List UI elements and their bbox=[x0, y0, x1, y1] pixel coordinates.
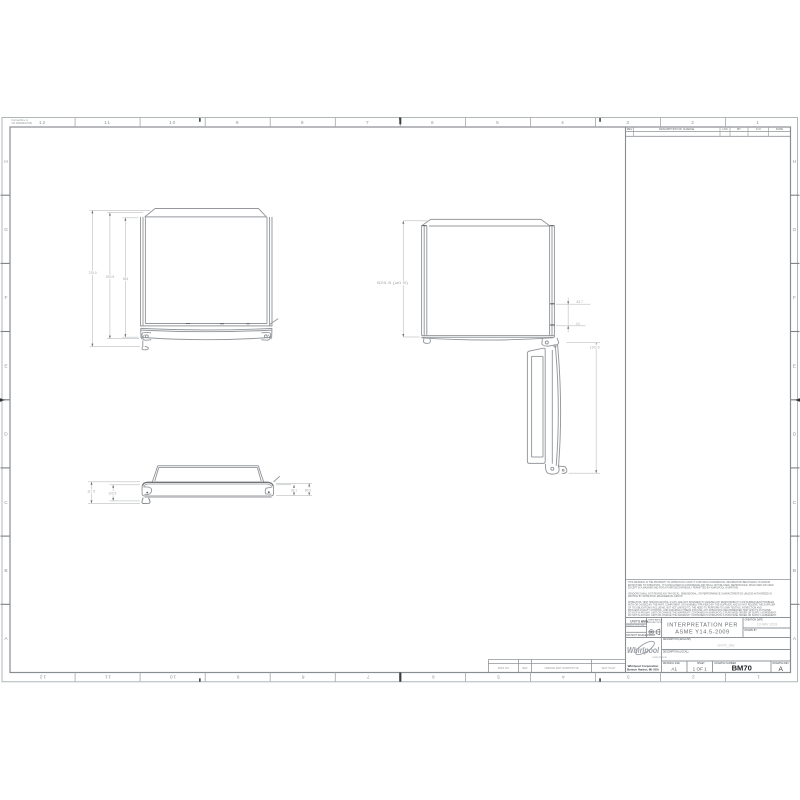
svg-text:D: D bbox=[793, 432, 797, 438]
svg-text:F: F bbox=[5, 295, 8, 301]
svg-text:4: 4 bbox=[561, 674, 565, 680]
svg-text:PART NO: PART NO bbox=[498, 666, 509, 670]
svg-text:11: 11 bbox=[104, 120, 111, 126]
svg-text:Benton Harbor, MI USA: Benton Harbor, MI USA bbox=[627, 667, 660, 671]
svg-text:UNITS: UNITS bbox=[630, 619, 641, 623]
svg-text:5: 5 bbox=[496, 120, 500, 126]
svg-text:10: 10 bbox=[169, 120, 176, 126]
svg-text:3: 3 bbox=[626, 674, 630, 680]
svg-text:DESCRIPTION OF CHANGE: DESCRIPTION OF CHANGE bbox=[659, 127, 694, 131]
svg-text:DATE: DATE bbox=[776, 127, 783, 131]
svg-text:H: H bbox=[793, 159, 797, 165]
svg-text:103.5: 103.5 bbox=[108, 491, 116, 495]
svg-text:ASME Y14.5-2009: ASME Y14.5-2009 bbox=[675, 630, 729, 636]
svg-text:7: 7 bbox=[366, 674, 370, 680]
svg-text:693.5: 693.5 bbox=[106, 275, 114, 279]
svg-text:OF ITS OBLIGATIONS INCLUDING,: OF ITS OBLIGATIONS INCLUDING, BUT NOT LI… bbox=[628, 606, 762, 609]
svg-text:2: 2 bbox=[691, 120, 695, 126]
svg-text:10: 10 bbox=[169, 674, 176, 680]
svg-text:EXCEPT IN A MANNER AND FOR A P: EXCEPT IN A MANNER AND FOR A PURPOSE EXP… bbox=[628, 587, 739, 590]
svg-text:ENTRUSTED TO WHIRLPOOL. IT IS: ENTRUSTED TO WHIRLPOOL. IT IS DISCLOSED … bbox=[628, 584, 774, 587]
svg-text:G: G bbox=[4, 227, 8, 233]
svg-text:826.5 (⌀0.5): 826.5 (⌀0.5) bbox=[377, 281, 408, 285]
svg-text:Format Rev. A: Format Rev. A bbox=[12, 118, 29, 122]
svg-text:REV: REV bbox=[627, 127, 633, 131]
svg-text:B: B bbox=[793, 568, 796, 574]
svg-text:1103.5: 1103.5 bbox=[590, 345, 600, 349]
svg-text:11: 11 bbox=[104, 674, 111, 680]
svg-text:H: H bbox=[4, 159, 8, 165]
svg-text:CREATION DATE: CREATION DATE bbox=[745, 618, 764, 621]
svg-text:C: C bbox=[4, 500, 8, 506]
svg-text:24: 24 bbox=[576, 322, 580, 326]
svg-text:1 OF 1: 1 OF 1 bbox=[693, 666, 707, 671]
svg-text:117.5: 117.5 bbox=[87, 489, 95, 493]
svg-text:CN 00000102T00: CN 00000102T00 bbox=[12, 121, 33, 125]
svg-text:WITH OR CAUSED BY THE PART, CO: WITH OR CAUSED BY THE PART, COMPONENT, O… bbox=[628, 604, 775, 607]
svg-text:D: D bbox=[4, 432, 8, 438]
svg-text:86.5: 86.5 bbox=[305, 488, 312, 492]
svg-text:A1: A1 bbox=[671, 666, 677, 671]
svg-text:DESCRIPTION (ENGLISH): DESCRIPTION (ENGLISH) bbox=[663, 639, 691, 641]
svg-text:4: 4 bbox=[561, 120, 565, 126]
svg-text:LBRAND WHT SUBSTITUTE: LBRAND WHT SUBSTITUTE bbox=[545, 666, 579, 670]
svg-text:725.0: 725.0 bbox=[88, 271, 96, 275]
svg-text:DRAWING REV: DRAWING REV bbox=[773, 662, 790, 665]
svg-text:BY: BY bbox=[737, 127, 741, 131]
svg-text:C.N: C.N bbox=[756, 127, 761, 131]
svg-text:C: C bbox=[793, 500, 797, 506]
svg-text:6: 6 bbox=[431, 120, 435, 126]
svg-text:9: 9 bbox=[236, 120, 240, 126]
svg-text:PROCESS QUALITY CONTROL, AND A: PROCESS QUALITY CONTROL, AND ASSURING FI… bbox=[628, 609, 771, 612]
svg-text:CORPORATION: CORPORATION bbox=[652, 656, 667, 659]
svg-text:8: 8 bbox=[301, 674, 305, 680]
svg-text:664: 664 bbox=[123, 277, 129, 281]
svg-text:VENDORS SHALL NOT REVISE ANY P: VENDORS SHALL NOT REVISE ANY PHYSICAL, D… bbox=[628, 592, 772, 595]
svg-text:8: 8 bbox=[301, 120, 305, 126]
svg-text:6: 6 bbox=[431, 674, 435, 680]
svg-text:LOC: LOC bbox=[722, 127, 728, 131]
svg-text:BM70: BM70 bbox=[732, 664, 752, 673]
svg-text:38.1: 38.1 bbox=[291, 488, 298, 492]
svg-text:13 MAY 2019: 13 MAY 2019 bbox=[757, 622, 777, 626]
svg-text:REV: REV bbox=[522, 666, 528, 670]
svg-text:DESCRIPTION (LOCAL): DESCRIPTION (LOCAL) bbox=[663, 651, 689, 654]
svg-text:9: 9 bbox=[236, 674, 240, 680]
svg-text:F: F bbox=[793, 295, 796, 301]
svg-text:12: 12 bbox=[39, 674, 46, 680]
svg-text:1: 1 bbox=[756, 674, 760, 680]
svg-text:E: E bbox=[4, 363, 7, 369]
svg-text:WHIRLPOOL TEST SPECIFICATIONS,: WHIRLPOOL TEST SPECIFICATIONS, IF ANY, A… bbox=[628, 601, 774, 604]
svg-text:DO NOT SCALE PRINT: DO NOT SCALE PRINT bbox=[627, 633, 656, 637]
svg-text:1: 1 bbox=[756, 120, 760, 126]
svg-text:2: 2 bbox=[691, 674, 695, 680]
svg-text:INTERPRETATION PER: INTERPRETATION PER bbox=[667, 622, 738, 628]
svg-text:DRAWN BY: DRAWN BY bbox=[745, 629, 758, 632]
svg-text:THIS DRAWING IS THE PROPERTY O: THIS DRAWING IS THE PROPERTY OF WHIRLPOO… bbox=[628, 581, 770, 584]
svg-text:E: E bbox=[793, 363, 796, 369]
svg-text:WRITING BY WHIRLPOOL ENGINEERI: WRITING BY WHIRLPOOL ENGINEERING GROUP. bbox=[628, 596, 683, 598]
svg-text:EFFECT FOR USE: EFFECT FOR USE bbox=[627, 625, 645, 627]
svg-text:5: 5 bbox=[496, 674, 500, 680]
svg-text:DRAWING SIZE: DRAWING SIZE bbox=[663, 662, 680, 665]
svg-text:B: B bbox=[4, 568, 7, 574]
svg-text:DO NOT IN ANYWAY LIMIT OR CHAN: DO NOT IN ANYWAY LIMIT OR CHANGE THE WAR… bbox=[628, 614, 777, 617]
svg-text:G: G bbox=[793, 227, 797, 233]
svg-text:3: 3 bbox=[626, 120, 630, 126]
svg-text:83.7: 83.7 bbox=[577, 300, 584, 304]
svg-text:- -: - - bbox=[627, 628, 629, 631]
svg-text:PROJECTION: PROJECTION bbox=[648, 622, 663, 624]
svg-text:WHT SCHT: WHT SCHT bbox=[602, 666, 616, 670]
svg-text:12: 12 bbox=[39, 120, 46, 126]
svg-text:7: 7 bbox=[366, 120, 370, 126]
svg-text:SHEET: SHEET bbox=[697, 663, 705, 665]
svg-text:A: A bbox=[778, 666, 783, 673]
svg-text:bm70_drw: bm70_drw bbox=[718, 644, 735, 648]
